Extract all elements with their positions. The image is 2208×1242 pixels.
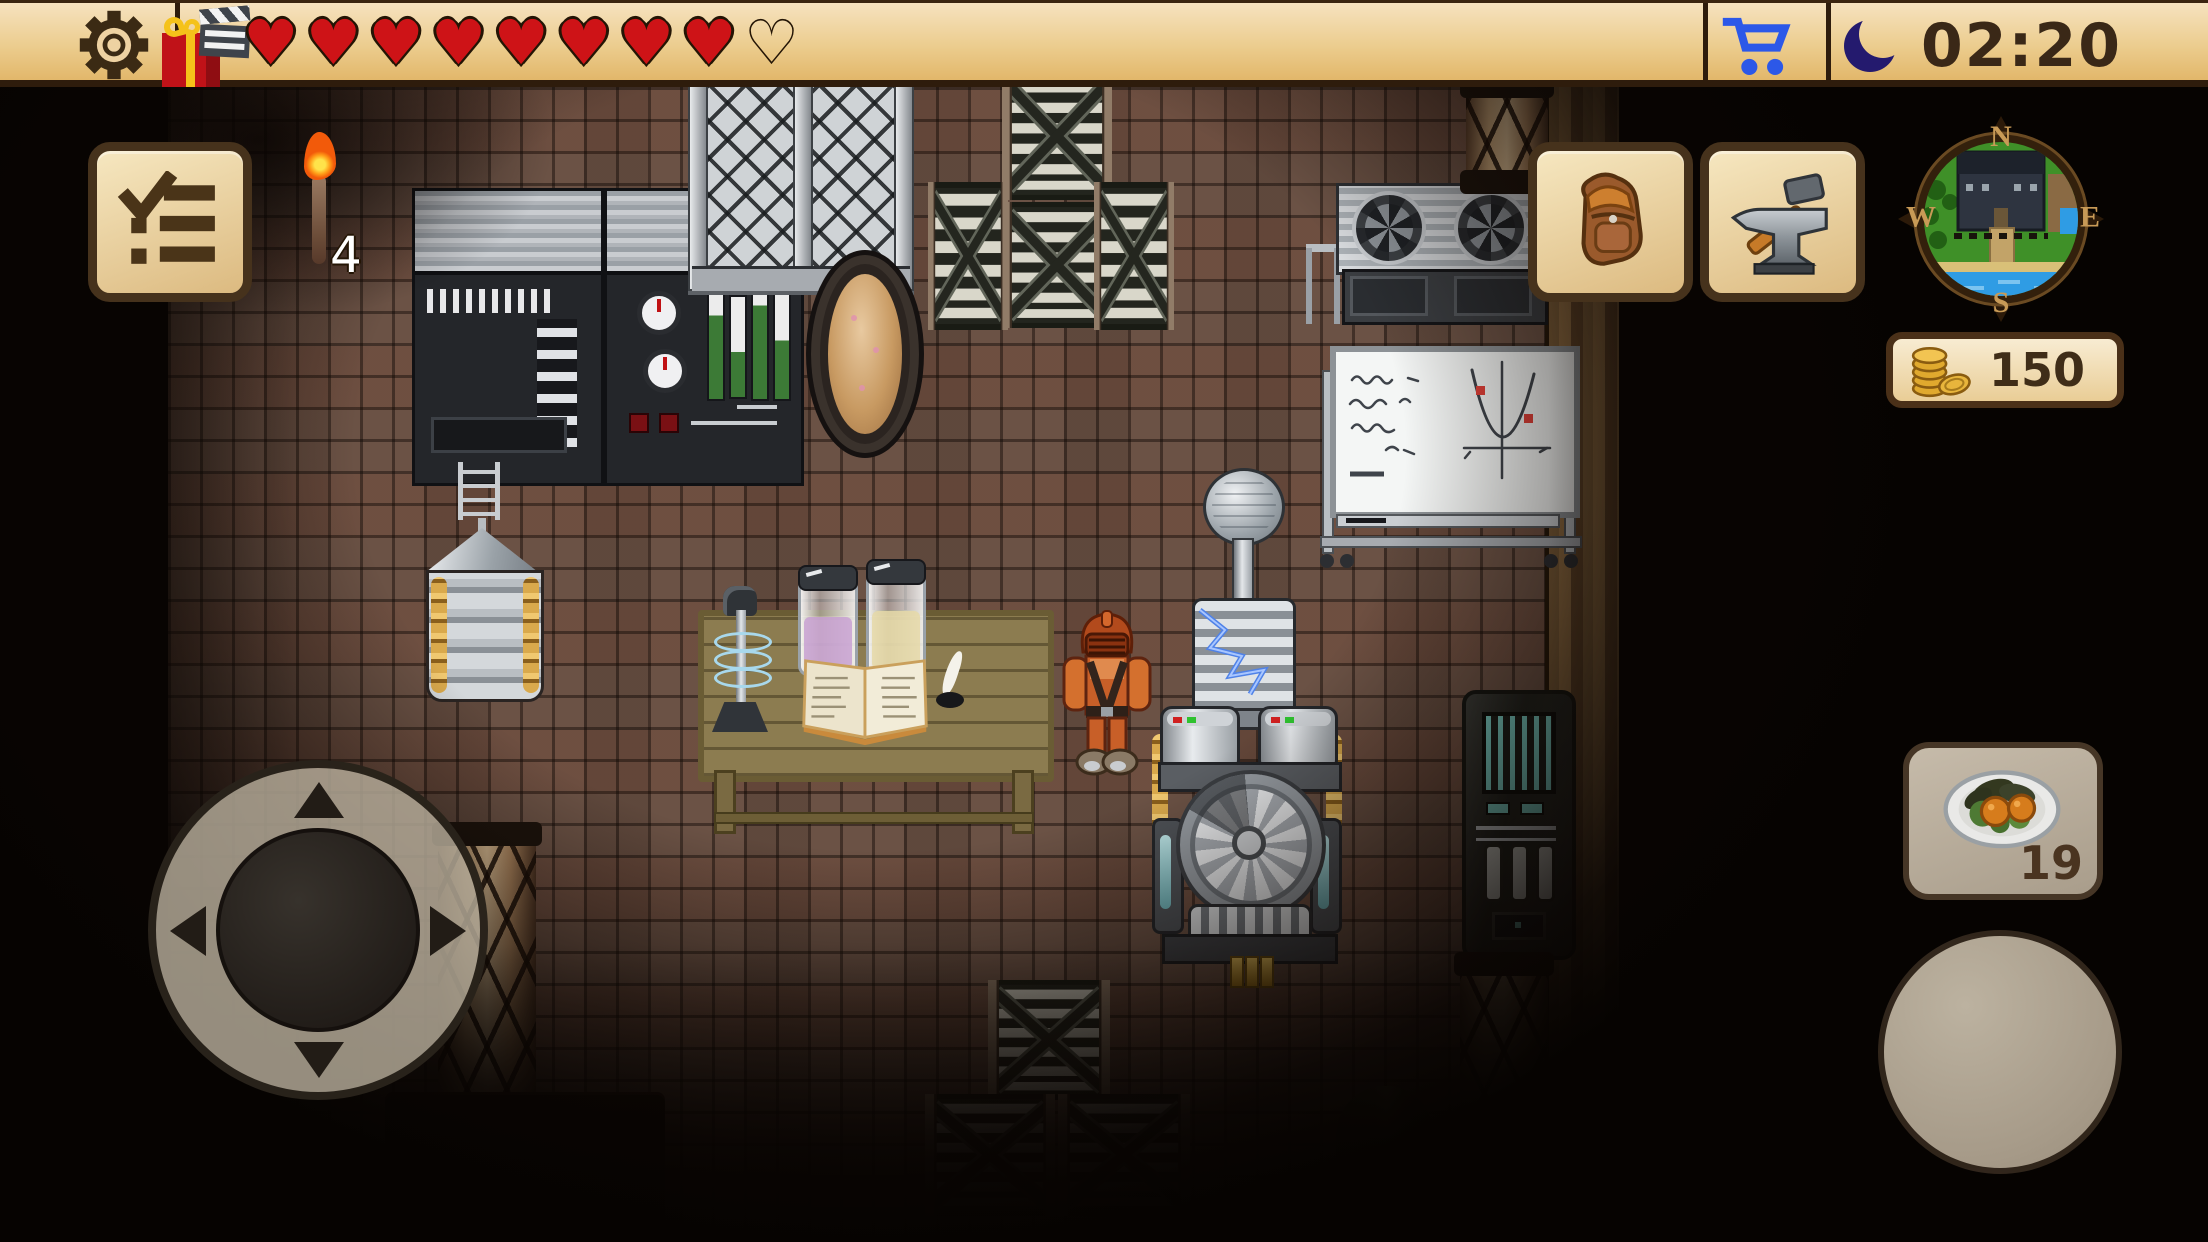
torch-icon (312, 176, 326, 264)
moon-icon (1843, 17, 1899, 73)
compass-north-label: N (1990, 120, 2012, 154)
backpack-icon (1555, 165, 1667, 279)
minimap-compass[interactable]: N W S E (1898, 116, 2104, 322)
gear-icon[interactable] (76, 7, 152, 83)
food-count: 19 (2019, 836, 2083, 890)
compass-west-label: W (1906, 201, 1936, 235)
heart-full-icon: ♥ (431, 12, 487, 74)
heart-full-icon: ♥ (556, 12, 612, 74)
coins-value: 150 (1989, 343, 2085, 397)
torch-item: 4 (290, 126, 360, 290)
flame-icon (304, 132, 336, 180)
dpad-left-arrow[interactable] (170, 906, 206, 956)
crafting-button[interactable] (1700, 142, 1865, 302)
heart-full-icon: ♥ (619, 12, 675, 74)
anvil-hammer-icon (1725, 165, 1841, 281)
heart-full-icon: ♥ (368, 12, 424, 74)
coin-stack-icon (1909, 341, 1975, 399)
heart-full-icon: ♥ (306, 12, 362, 74)
torch-count: 4 (330, 226, 362, 284)
heart-empty-icon: ♡ (744, 12, 800, 74)
top-bar: ♥♥♥♥♥♥♥♥♡ 02:20 (0, 0, 2208, 87)
action-button[interactable] (1878, 930, 2122, 1174)
food-slot-button[interactable]: 19 (1903, 742, 2103, 900)
compass-east-label: E (2080, 201, 2100, 235)
dpad-hub[interactable] (216, 828, 420, 1032)
heart-full-icon: ♥ (243, 12, 299, 74)
checklist-icon (117, 171, 223, 273)
clock-time: 02:20 (1921, 11, 2122, 81)
cart-icon[interactable] (1722, 11, 1796, 81)
inventory-button[interactable] (1528, 142, 1693, 302)
quest-button[interactable] (88, 142, 252, 302)
dpad-right-arrow[interactable] (430, 906, 466, 956)
coins-badge[interactable]: 150 (1886, 332, 2124, 408)
game-screen: ♥♥♥♥♥♥♥♥♡ 02:20 (0, 0, 2208, 1242)
compass-south-label: S (1993, 286, 2010, 320)
dpad-control[interactable] (148, 760, 488, 1100)
heart-full-icon: ♥ (493, 12, 549, 74)
dpad-up-arrow[interactable] (294, 782, 344, 818)
heart-full-icon: ♥ (681, 12, 737, 74)
dpad-down-arrow[interactable] (294, 1042, 344, 1078)
gift-reward-button[interactable] (160, 11, 256, 87)
health-hearts: ♥♥♥♥♥♥♥♥♡ (243, 5, 799, 81)
